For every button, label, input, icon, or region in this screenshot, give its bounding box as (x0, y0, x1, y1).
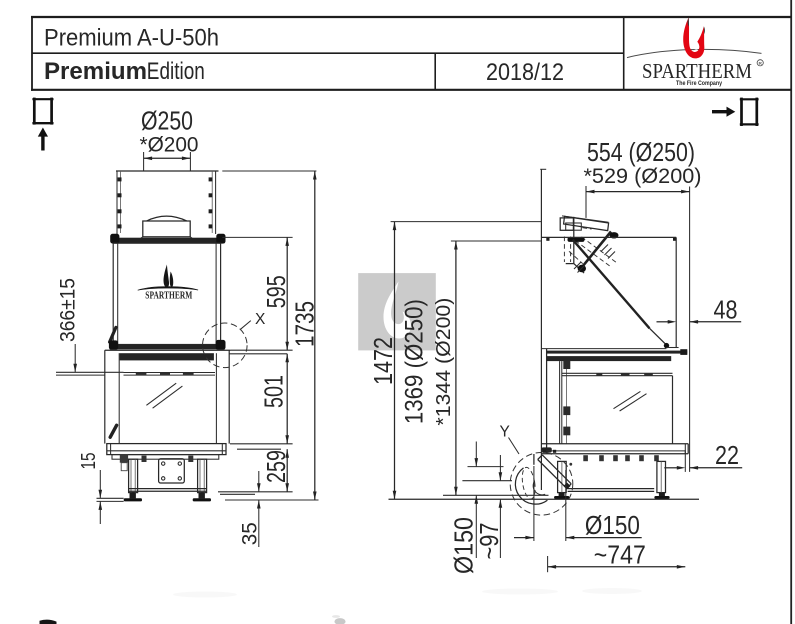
svg-text:48: 48 (714, 295, 738, 325)
svg-text:366±15: 366±15 (57, 278, 80, 342)
svg-text:Ø150: Ø150 (585, 510, 640, 540)
svg-text:Edition: Edition (147, 58, 205, 85)
svg-text:15: 15 (78, 453, 100, 470)
svg-text:SPARTHERM: SPARTHERM (145, 289, 192, 301)
svg-text:2018/12: 2018/12 (486, 59, 564, 86)
svg-text:259: 259 (261, 450, 291, 483)
svg-text:554 (Ø250): 554 (Ø250) (587, 137, 695, 167)
svg-text:Premium: Premium (44, 58, 147, 85)
svg-text:1735: 1735 (290, 301, 320, 347)
svg-text:*1344 (Ø200): *1344 (Ø200) (432, 298, 455, 426)
svg-text:35: 35 (239, 522, 262, 545)
svg-text:X: X (255, 311, 266, 328)
svg-text:R: R (758, 61, 762, 67)
svg-text:1472: 1472 (368, 337, 398, 385)
svg-text:~97: ~97 (474, 523, 504, 560)
svg-text:~747: ~747 (594, 539, 646, 569)
svg-text:*529 (Ø200): *529 (Ø200) (584, 165, 702, 188)
svg-text:595: 595 (261, 275, 291, 308)
svg-text:22: 22 (715, 440, 739, 470)
svg-text:Ø250: Ø250 (141, 106, 193, 136)
svg-text:SPARTHERM: SPARTHERM (642, 59, 752, 83)
svg-text:1369 (Ø250): 1369 (Ø250) (401, 299, 429, 424)
svg-text:Premium A-U-50h: Premium A-U-50h (44, 25, 219, 52)
svg-text:501: 501 (259, 375, 289, 408)
svg-text:Y: Y (500, 424, 510, 441)
svg-text:*Ø200: *Ø200 (140, 133, 199, 156)
svg-text:The Fire Company: The Fire Company (676, 81, 723, 87)
